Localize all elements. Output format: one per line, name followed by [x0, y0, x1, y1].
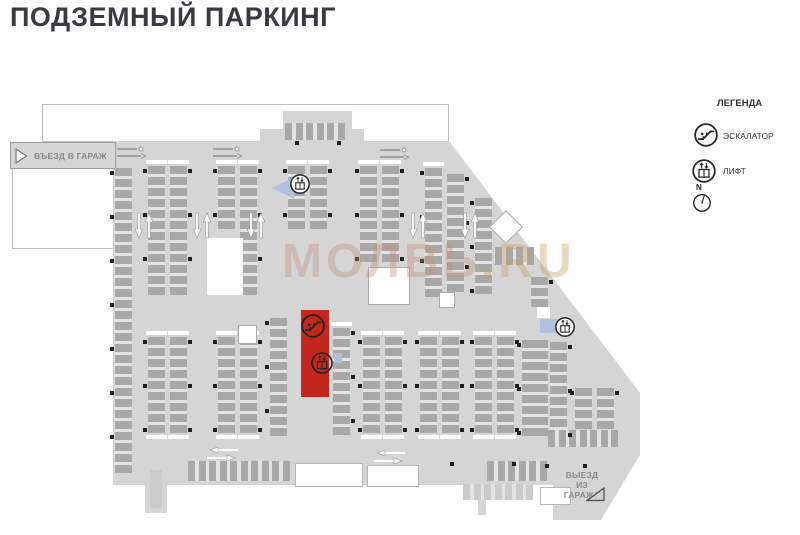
- parking-stall: [360, 188, 377, 196]
- parking-stall: [285, 123, 292, 140]
- pillar: [460, 340, 464, 344]
- parking-stall: [505, 484, 512, 500]
- parking-stall: [497, 337, 514, 345]
- parking-stall: [218, 210, 235, 218]
- aisle-marking: [168, 331, 189, 335]
- parking-stall: [447, 185, 464, 193]
- parking-stall: [115, 256, 132, 264]
- parking-stall: [363, 403, 380, 411]
- parking-stall: [170, 348, 187, 356]
- parking-stall: [382, 177, 399, 185]
- parking-stall: [240, 199, 257, 207]
- parking-stall: [475, 359, 492, 367]
- parking-stall: [385, 403, 402, 411]
- parking-stall: [516, 484, 523, 500]
- pillar: [470, 428, 474, 432]
- parking-stall: [240, 370, 257, 378]
- pillar: [403, 428, 407, 432]
- parking-stall: [251, 461, 258, 481]
- parking-stall: [475, 381, 492, 389]
- parking-stall: [425, 179, 442, 187]
- parking-stall: [115, 278, 132, 286]
- parking-stalls-strip: [363, 337, 380, 433]
- parking-stall: [531, 288, 548, 296]
- parking-stall: [575, 410, 592, 418]
- parking-stall: [363, 381, 380, 389]
- parking-stall: [360, 243, 377, 251]
- parking-stall: [522, 373, 548, 381]
- aisle-marking: [361, 331, 382, 335]
- parking-stall: [115, 300, 132, 308]
- parking-stall: [170, 425, 187, 433]
- pillar: [415, 428, 419, 432]
- parking-stall: [270, 417, 287, 425]
- parking-stall: [170, 221, 187, 229]
- parking-stall: [497, 403, 514, 411]
- pillar: [143, 169, 147, 173]
- parking-stall: [148, 337, 165, 345]
- parking-stall: [115, 410, 132, 418]
- parking-stalls-strip: [548, 430, 618, 447]
- pillar: [517, 431, 521, 435]
- parking-stall: [270, 373, 287, 381]
- parking-stall: [310, 188, 327, 196]
- parking-stall: [601, 430, 608, 447]
- parking-stall: [425, 201, 442, 209]
- aisle-marking: [361, 435, 382, 439]
- pillar: [545, 464, 549, 468]
- parking-stall: [498, 461, 505, 481]
- pillar: [512, 462, 516, 466]
- pillar: [258, 384, 262, 388]
- parking-stall: [522, 406, 548, 414]
- parking-stall: [420, 392, 437, 400]
- parking-stall: [115, 311, 132, 319]
- parking-stall: [148, 381, 165, 389]
- parking-stall: [550, 386, 567, 394]
- parking-stall: [240, 425, 257, 433]
- escalator-icon: [300, 313, 326, 344]
- parking-stall: [115, 179, 132, 187]
- pillar: [470, 340, 474, 344]
- parking-stall: [550, 419, 567, 427]
- parking-stall: [115, 201, 132, 209]
- parking-stall: [333, 328, 350, 336]
- parking-stall: [382, 166, 399, 174]
- parking-stalls-strip: [497, 337, 514, 433]
- parking-stall: [420, 425, 437, 433]
- entrance-label: ВЪЕЗД В ГАРАЖ: [34, 151, 107, 161]
- parking-stall: [442, 370, 459, 378]
- parking-stall: [148, 392, 165, 400]
- aisle-marking: [440, 435, 461, 439]
- parking-stall: [170, 210, 187, 218]
- pillar: [213, 213, 217, 217]
- pillar: [615, 391, 619, 395]
- parking-stall: [597, 421, 614, 429]
- parking-stall: [170, 243, 187, 251]
- pillar: [415, 340, 419, 344]
- pillar: [110, 347, 114, 351]
- parking-stall: [522, 362, 548, 370]
- parking-stalls-strip: [522, 340, 548, 436]
- parking-stall: [333, 416, 350, 424]
- parking-stall: [420, 381, 437, 389]
- parking-stall: [240, 403, 257, 411]
- parking-stall: [385, 337, 402, 345]
- parking-stalls-strip: [170, 166, 187, 295]
- parking-stall: [148, 414, 165, 422]
- parking-stall: [442, 337, 459, 345]
- compass-icon: [691, 191, 717, 217]
- parking-stall: [170, 254, 187, 262]
- parking-stall: [333, 339, 350, 347]
- parking-stalls-strip: [597, 388, 614, 429]
- parking-stalls-strip: [148, 337, 165, 433]
- parking-stall: [218, 359, 235, 367]
- lane-arrows-icon: [408, 212, 428, 245]
- pillar: [355, 213, 359, 217]
- pillar: [213, 169, 217, 173]
- parking-stall: [148, 254, 165, 262]
- parking-stall: [447, 174, 464, 182]
- pillar: [213, 428, 217, 432]
- parking-stall: [115, 366, 132, 374]
- parking-stall: [522, 351, 548, 359]
- aisle-marking: [473, 435, 494, 439]
- parking-stall: [327, 123, 334, 140]
- aisle-marking: [418, 331, 439, 335]
- exit-arrow-icon: [586, 487, 606, 507]
- pillar: [258, 428, 262, 432]
- parking-stall: [170, 359, 187, 367]
- aisle-marking: [423, 162, 444, 166]
- parking-stalls-strip: [475, 337, 492, 433]
- legend-escalator-label: ЭСКАЛАТОР: [723, 131, 774, 141]
- pillar: [143, 340, 147, 344]
- parking-stall: [240, 381, 257, 389]
- parking-stall: [420, 414, 437, 422]
- parking-stall: [115, 443, 132, 451]
- parking-stall: [170, 265, 187, 273]
- parking-stalls-strip: [487, 461, 547, 481]
- parking-stalls-strip: [420, 337, 437, 433]
- parking-stall: [385, 414, 402, 422]
- parking-stall: [550, 364, 567, 372]
- pillar: [420, 259, 424, 263]
- parking-stall: [288, 210, 305, 218]
- parking-stall: [115, 465, 132, 473]
- pillar: [188, 169, 192, 173]
- aisle-marking: [495, 435, 516, 439]
- parking-stall: [475, 403, 492, 411]
- parking-stall: [527, 247, 534, 265]
- zone-marker: [334, 353, 342, 363]
- parking-stall: [360, 166, 377, 174]
- parking-stall: [115, 289, 132, 297]
- parking-stall: [218, 392, 235, 400]
- parking-stall: [516, 247, 523, 265]
- aisle-marking: [331, 322, 352, 326]
- core-room: [368, 267, 410, 305]
- pillar: [265, 409, 269, 413]
- parking-stall: [363, 414, 380, 422]
- parking-stall: [115, 267, 132, 275]
- barrier-icon: [117, 146, 149, 165]
- parking-stall: [497, 425, 514, 433]
- parking-stall: [296, 123, 303, 140]
- pillar: [110, 259, 114, 263]
- lane-arrows-icon: [134, 212, 154, 245]
- parking-stall: [310, 177, 327, 185]
- parking-stall: [115, 190, 132, 198]
- parking-stall: [148, 287, 165, 295]
- pillar: [400, 257, 404, 261]
- parking-stall: [497, 381, 514, 389]
- parking-stall: [333, 394, 350, 402]
- parking-stall: [270, 384, 287, 392]
- parking-stalls-strip: [495, 247, 534, 265]
- parking-stall: [385, 370, 402, 378]
- parking-stall: [475, 264, 492, 272]
- pillar: [358, 428, 362, 432]
- pillar: [110, 391, 114, 395]
- parking-stall: [115, 421, 132, 429]
- parking-stall: [338, 123, 345, 140]
- parking-stall: [575, 421, 592, 429]
- parking-stalls-strip: [218, 337, 235, 433]
- parking-stall: [420, 337, 437, 345]
- ramp-surface: [150, 470, 162, 508]
- parking-stall: [148, 188, 165, 196]
- parking-stall: [262, 461, 269, 481]
- parking-stalls-strip: [285, 123, 345, 140]
- pillar: [415, 384, 419, 388]
- parking-stall: [590, 430, 597, 447]
- parking-stall: [522, 417, 548, 425]
- parking-stall: [218, 188, 235, 196]
- core-room: [439, 292, 455, 308]
- parking-stalls-strip: [170, 337, 187, 433]
- pillar: [143, 257, 147, 261]
- parking-stall: [115, 245, 132, 253]
- pillar: [295, 141, 299, 145]
- garage-entrance-lane: ВЪЕЗД В ГАРАЖ: [10, 142, 116, 169]
- parking-stall: [526, 484, 533, 500]
- parking-stall: [148, 403, 165, 411]
- parking-stall: [495, 484, 502, 500]
- barrier-icon: [380, 147, 412, 166]
- parking-stall: [550, 353, 567, 361]
- pillar: [517, 343, 521, 347]
- parking-stalls-strip: [218, 166, 235, 229]
- pillar: [188, 257, 192, 261]
- parking-stall: [170, 232, 187, 240]
- parking-stall: [115, 355, 132, 363]
- aisle-marking: [146, 435, 167, 439]
- pillar: [355, 257, 359, 261]
- pillar: [110, 303, 114, 307]
- parking-stall: [240, 348, 257, 356]
- parking-stall: [363, 392, 380, 400]
- parking-stalls-strip: [240, 337, 257, 433]
- parking-stall: [360, 254, 377, 262]
- parking-stall: [529, 461, 536, 481]
- legend-lift-label: ЛИФТ: [723, 166, 746, 176]
- parking-stall: [447, 273, 464, 281]
- parking-stall: [420, 348, 437, 356]
- parking-stall: [597, 399, 614, 407]
- parking-stall: [283, 461, 290, 481]
- lift-icon: [554, 316, 576, 343]
- exit-label-line: ВЫЕЗД: [558, 470, 606, 480]
- parking-stall: [333, 383, 350, 391]
- parking-stall: [442, 359, 459, 367]
- parking-stalls-strip: [442, 337, 459, 433]
- lift-icon: [289, 173, 311, 200]
- core-room: [537, 307, 550, 318]
- parking-stall: [363, 370, 380, 378]
- pillar: [143, 384, 147, 388]
- aisle-marking: [168, 435, 189, 439]
- pillar: [213, 340, 217, 344]
- parking-stall: [385, 425, 402, 433]
- parking-stall: [115, 322, 132, 330]
- parking-stall: [447, 262, 464, 270]
- pillar: [213, 384, 217, 388]
- parking-stall: [148, 177, 165, 185]
- parking-stalls-strip: [382, 166, 399, 262]
- parking-stall: [240, 392, 257, 400]
- parking-stall: [382, 221, 399, 229]
- parking-stall: [531, 299, 548, 307]
- pillar: [143, 428, 147, 432]
- parking-stall: [497, 370, 514, 378]
- parking-stall: [170, 381, 187, 389]
- parking-stall: [240, 166, 257, 174]
- parking-stall: [575, 388, 592, 396]
- parking-stall: [148, 276, 165, 284]
- floor-cutout: [295, 463, 363, 487]
- parking-stall: [475, 198, 492, 206]
- escalator-icon: [693, 122, 719, 148]
- parking-stall: [363, 337, 380, 345]
- parking-stalls-strip: [385, 337, 402, 433]
- parking-stall: [474, 484, 481, 500]
- parking-stall: [425, 245, 442, 253]
- parking-stall: [442, 403, 459, 411]
- parking-stall: [306, 123, 313, 140]
- core-room: [207, 238, 243, 295]
- parking-stall: [333, 405, 350, 413]
- parking-stall: [519, 461, 526, 481]
- parking-stall: [475, 253, 492, 261]
- pillar: [403, 384, 407, 388]
- building-outline-top: [42, 104, 449, 142]
- parking-stall: [475, 370, 492, 378]
- parking-stall: [288, 221, 305, 229]
- parking-stall: [522, 428, 548, 436]
- pillar: [258, 340, 262, 344]
- parking-stall: [240, 177, 257, 185]
- pillar: [420, 171, 424, 175]
- parking-stall: [218, 337, 235, 345]
- parking-stall: [360, 199, 377, 207]
- lane-arrows-icon: [192, 212, 212, 245]
- pillar: [460, 384, 464, 388]
- parking-stall: [240, 359, 257, 367]
- aisle-marking: [286, 160, 307, 164]
- parking-stall: [148, 166, 165, 174]
- parking-stall: [425, 256, 442, 264]
- parking-stall: [115, 223, 132, 231]
- pillar: [470, 289, 474, 293]
- parking-stall: [442, 381, 459, 389]
- parking-stall: [442, 425, 459, 433]
- parking-stall: [310, 210, 327, 218]
- parking-stalls-strip: [360, 166, 377, 262]
- parking-stall: [442, 392, 459, 400]
- pillar: [265, 321, 269, 325]
- parking-stall: [497, 348, 514, 356]
- parking-stall: [333, 372, 350, 380]
- aisle-marking: [146, 331, 167, 335]
- pillar: [465, 177, 469, 181]
- parking-stalls-strip: [310, 166, 327, 229]
- parking-stall: [463, 484, 470, 500]
- parking-stall: [522, 395, 548, 403]
- pillar: [188, 340, 192, 344]
- parking-stall: [115, 344, 132, 352]
- parking-stall: [218, 199, 235, 207]
- parking-stall: [382, 188, 399, 196]
- parking-stalls-strip: [531, 277, 548, 307]
- parking-stall: [385, 381, 402, 389]
- aisle-marking: [238, 435, 259, 439]
- parking-stall: [611, 430, 618, 447]
- parking-stall: [115, 168, 132, 176]
- pillar: [351, 419, 355, 423]
- parking-stall: [218, 221, 235, 229]
- parking-stall: [310, 221, 327, 229]
- parking-stall: [170, 276, 187, 284]
- parking-stall: [522, 384, 548, 392]
- pillar: [351, 375, 355, 379]
- parking-stall: [148, 359, 165, 367]
- pillar: [283, 213, 287, 217]
- parking-stall: [425, 190, 442, 198]
- parking-stall: [425, 267, 442, 275]
- parking-stall: [270, 318, 287, 326]
- pillar: [337, 141, 341, 145]
- parking-stall: [548, 430, 555, 447]
- pillar: [450, 462, 454, 466]
- parking-stall: [497, 414, 514, 422]
- parking-stall: [385, 348, 402, 356]
- parking-stall: [218, 425, 235, 433]
- parking-stall: [241, 461, 248, 481]
- parking-stall: [170, 392, 187, 400]
- parking-stall: [506, 247, 513, 265]
- parking-stall: [218, 381, 235, 389]
- parking-stall: [420, 403, 437, 411]
- pillar: [328, 213, 332, 217]
- aisle-marking: [308, 160, 329, 164]
- parking-stall: [218, 166, 235, 174]
- pillar: [517, 387, 521, 391]
- pillar: [549, 280, 553, 284]
- parking-stall: [170, 177, 187, 185]
